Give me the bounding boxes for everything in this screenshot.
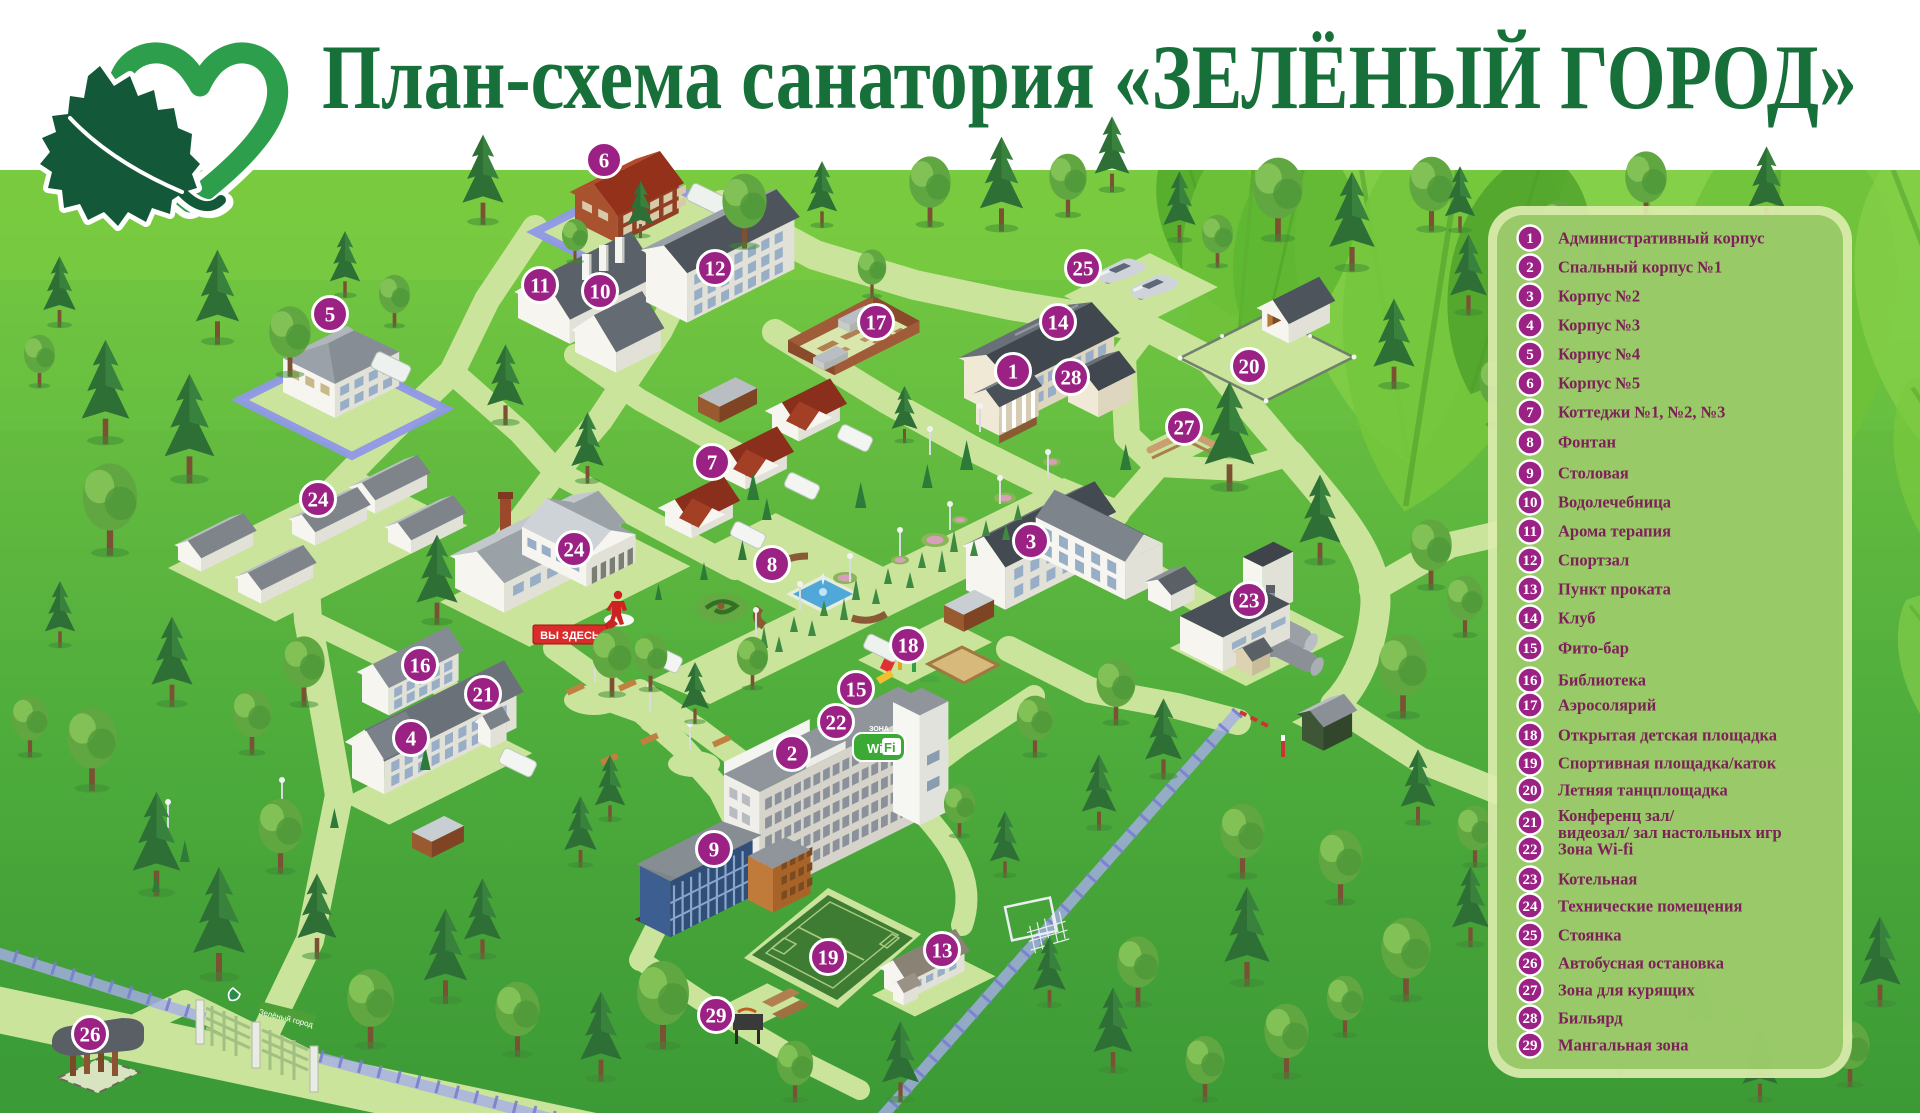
svg-text:Корпус №2: Корпус №2	[1558, 287, 1640, 306]
svg-text:23: 23	[1523, 872, 1538, 888]
svg-text:18: 18	[1523, 728, 1538, 744]
svg-text:8: 8	[767, 552, 778, 576]
svg-text:26: 26	[80, 1022, 101, 1046]
svg-text:10: 10	[1523, 495, 1538, 511]
svg-text:20: 20	[1523, 783, 1538, 799]
svg-text:29: 29	[706, 1003, 727, 1027]
svg-text:4: 4	[1526, 318, 1534, 334]
svg-text:19: 19	[818, 945, 839, 969]
svg-text:28: 28	[1523, 1011, 1538, 1027]
svg-text:16: 16	[1523, 673, 1539, 689]
svg-text:5: 5	[325, 302, 336, 326]
svg-text:Автобусная остановка: Автобусная остановка	[1558, 954, 1724, 973]
svg-text:ЗОНА: ЗОНА	[869, 726, 889, 733]
svg-text:10: 10	[590, 279, 611, 303]
svg-text:26: 26	[1523, 956, 1539, 972]
svg-text:21: 21	[473, 682, 494, 706]
svg-text:9: 9	[709, 837, 720, 861]
svg-text:Аэросолярий: Аэросолярий	[1558, 696, 1657, 715]
svg-text:Коттеджи №1, №2, №3: Коттеджи №1, №2, №3	[1558, 403, 1725, 422]
svg-text:24: 24	[564, 537, 586, 561]
svg-text:Летняя танцплощадка: Летняя танцплощадка	[1558, 781, 1728, 800]
svg-text:14: 14	[1523, 611, 1539, 627]
svg-text:2: 2	[787, 741, 798, 765]
svg-text:Спортивная площадка/каток: Спортивная площадка/каток	[1558, 754, 1777, 773]
svg-text:19: 19	[1523, 756, 1538, 772]
svg-text:Зона Wi-fi: Зона Wi-fi	[1558, 840, 1634, 859]
svg-text:14: 14	[1048, 310, 1070, 334]
svg-text:4: 4	[406, 726, 417, 750]
svg-text:Fi: Fi	[884, 740, 896, 755]
svg-text:План-схема санатория «ЗЕЛЁНЫЙ: План-схема санатория «ЗЕЛЁНЫЙ ГОРОД»	[322, 26, 1857, 128]
svg-text:Клуб: Клуб	[1558, 609, 1596, 628]
svg-text:Административный корпус: Административный корпус	[1558, 229, 1764, 248]
svg-text:6: 6	[1526, 376, 1534, 392]
svg-text:28: 28	[1061, 365, 1082, 389]
svg-text:1: 1	[1008, 359, 1019, 383]
svg-text:Мангальная зона: Мангальная зона	[1558, 1036, 1689, 1055]
svg-text:7: 7	[707, 450, 718, 474]
svg-text:22: 22	[826, 710, 847, 734]
svg-text:Арома терапия: Арома терапия	[1558, 522, 1671, 541]
svg-text:Wi: Wi	[867, 741, 883, 756]
svg-text:25: 25	[1523, 928, 1538, 944]
svg-text:Спортзал: Спортзал	[1558, 551, 1629, 570]
svg-text:17: 17	[1523, 698, 1539, 714]
svg-text:25: 25	[1073, 256, 1094, 280]
svg-text:27: 27	[1174, 415, 1195, 439]
svg-text:5: 5	[1526, 347, 1534, 363]
svg-text:Пункт проката: Пункт проката	[1558, 580, 1671, 599]
svg-text:Корпус №3: Корпус №3	[1558, 316, 1640, 335]
svg-text:22: 22	[1523, 842, 1538, 858]
svg-text:21: 21	[1523, 815, 1538, 831]
svg-text:Бильярд: Бильярд	[1558, 1009, 1623, 1028]
svg-text:23: 23	[1239, 588, 1260, 612]
svg-text:7: 7	[1526, 405, 1534, 421]
svg-text:18: 18	[898, 633, 919, 657]
svg-text:6: 6	[599, 148, 610, 172]
svg-text:Фонтан: Фонтан	[1558, 433, 1616, 452]
svg-text:13: 13	[932, 938, 953, 962]
svg-text:Библиотека: Библиотека	[1558, 671, 1646, 690]
svg-text:3: 3	[1026, 529, 1037, 553]
svg-text:Фито-бар: Фито-бар	[1558, 639, 1629, 658]
svg-text:27: 27	[1523, 983, 1539, 999]
svg-text:Котельная: Котельная	[1558, 870, 1637, 889]
svg-text:Столовая: Столовая	[1558, 464, 1629, 483]
svg-text:3: 3	[1526, 289, 1534, 305]
svg-text:Технические помещения: Технические помещения	[1558, 897, 1743, 916]
svg-text:ВЫ ЗДЕСЬ: ВЫ ЗДЕСЬ	[540, 630, 600, 642]
svg-text:16: 16	[410, 653, 431, 677]
svg-text:11: 11	[1523, 524, 1537, 540]
svg-text:24: 24	[308, 487, 330, 511]
svg-text:9: 9	[1526, 466, 1534, 482]
svg-text:Корпус №4: Корпус №4	[1558, 345, 1640, 364]
svg-text:15: 15	[846, 677, 867, 701]
svg-text:8: 8	[1526, 435, 1534, 451]
svg-text:Зона для курящих: Зона для курящих	[1558, 981, 1696, 1000]
svg-text:17: 17	[866, 310, 887, 334]
svg-text:Открытая детская площадка: Открытая детская площадка	[1558, 726, 1777, 745]
svg-text:24: 24	[1523, 899, 1539, 915]
svg-text:20: 20	[1239, 354, 1260, 378]
svg-text:Стоянка: Стоянка	[1558, 926, 1621, 945]
svg-text:11: 11	[530, 273, 550, 297]
svg-text:29: 29	[1523, 1038, 1538, 1054]
svg-text:Спальный корпус №1: Спальный корпус №1	[1558, 258, 1722, 277]
svg-text:12: 12	[1523, 553, 1538, 569]
svg-text:15: 15	[1523, 641, 1538, 657]
svg-text:Корпус №5: Корпус №5	[1558, 374, 1640, 393]
svg-text:1: 1	[1526, 231, 1534, 247]
svg-text:2: 2	[1526, 260, 1534, 276]
svg-text:12: 12	[705, 256, 726, 280]
svg-text:13: 13	[1523, 582, 1538, 598]
svg-text:Водолечебница: Водолечебница	[1558, 493, 1671, 512]
